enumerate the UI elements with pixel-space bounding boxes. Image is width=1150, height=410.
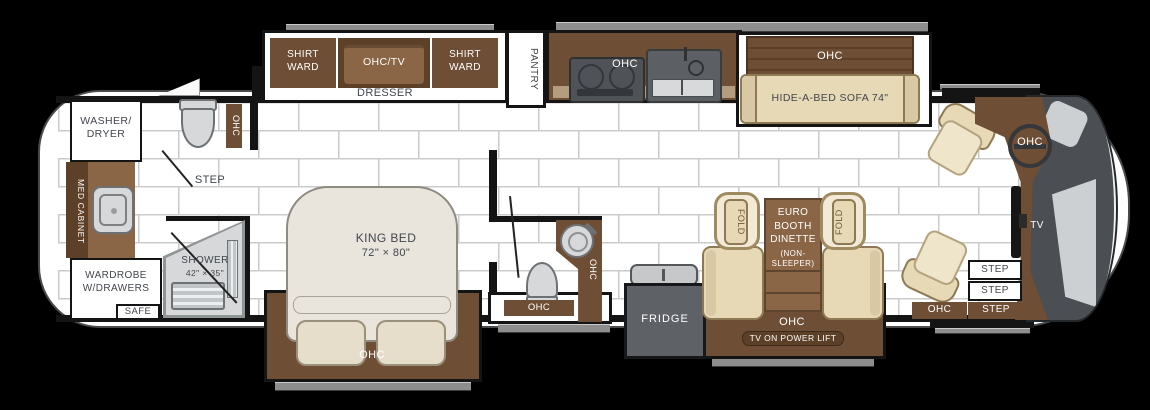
shower-top-wall (166, 216, 250, 221)
kitchen-ohc-label: OHC (600, 58, 650, 72)
entry-step-label-1: STEP (968, 264, 1022, 277)
shirt-ward-right-label: SHIRT WARD (432, 49, 498, 74)
dinette-ohc-label: OHC (762, 316, 822, 330)
rear-step-label: STEP (182, 174, 238, 188)
tv-lift-label: TV ON POWER LIFT (742, 333, 844, 344)
king-bed-label: KING BED (326, 231, 446, 246)
slide-rail (498, 324, 610, 333)
ohc-tv-label: OHC/TV (338, 56, 430, 69)
entry-step-label-2: STEP (968, 285, 1022, 298)
entry-step-label-3: STEP (968, 304, 1024, 317)
shirt-ward-left-label: SHIRT WARD (270, 49, 336, 74)
booth-left-backrest (706, 250, 716, 316)
slide-rail (935, 328, 1030, 334)
front-rim-line (1084, 101, 1118, 317)
bed-ohc-label: OHC (342, 349, 402, 363)
cooktop-controls (577, 89, 633, 96)
booth-seat-left (702, 246, 764, 320)
wardrobe-label: WARDROBE W/DRAWERS (68, 270, 164, 295)
slide-rail (275, 382, 471, 391)
booth-seat-right (822, 246, 884, 320)
shower-size-label: 42" × 35" (166, 268, 244, 279)
dinette-sub-label: (NON- SLEEPER) (762, 249, 824, 269)
rear-bath-wall (250, 100, 258, 150)
sink-divider (681, 79, 683, 95)
med-sink-drain (111, 208, 117, 214)
sofa-label: HIDE-A-BED SOFA 74" (742, 92, 918, 105)
king-bed (286, 186, 458, 342)
king-bed-size-label: 72" × 80" (326, 247, 446, 261)
rear-bath-ohc-label: OHC (227, 106, 241, 146)
med-cabinet-label: MED CABINET (68, 166, 86, 256)
sofa-ohc-label: OHC (805, 50, 855, 64)
fold-left-label: FOLD (728, 200, 746, 244)
faucet-stem (684, 47, 687, 61)
med-sink (92, 186, 134, 234)
half-bath-ohc-vertical-label: OHC (582, 248, 598, 292)
table-line-1 (766, 270, 820, 272)
booth-right-backrest (870, 250, 880, 316)
kitchen-sink (646, 49, 722, 103)
rv-floor-plan: OHC STEP WASHER/ DRYER MED CABINET WARDR… (0, 0, 1150, 410)
fridge-label: FRIDGE (624, 313, 706, 327)
washer-dryer-label: WASHER/ DRYER (70, 115, 142, 141)
dresser-label: DRESSER (300, 87, 470, 101)
sink-basins (652, 79, 714, 97)
fridge-lid-line (662, 269, 665, 281)
shower-label: SHOWER (166, 255, 244, 268)
shower-bench (171, 282, 225, 310)
pantry-label: PANTRY (513, 36, 539, 102)
safe-label: SAFE (116, 306, 160, 318)
faucet-icon (688, 60, 704, 76)
half-bath-ohc-label: OHC (504, 302, 574, 314)
cockpit-tv-label: TV (1024, 220, 1050, 233)
table-line-2 (766, 292, 820, 294)
fold-right-label: FOLD (834, 200, 852, 244)
entry-ohc-label: OHC (912, 304, 967, 317)
dinette-title-label: EURO BOOTH DINETTE (762, 206, 824, 247)
bedroom-bath-wall (489, 150, 497, 222)
cockpit-ohc-label: OHC (1004, 136, 1056, 150)
bed-fold-band (293, 296, 451, 314)
